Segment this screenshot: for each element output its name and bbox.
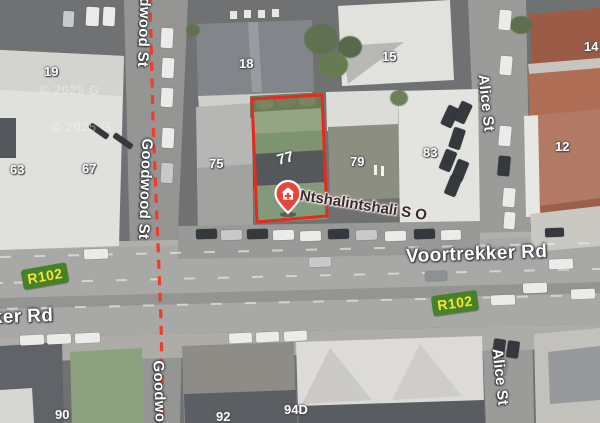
parcel-number: 19 bbox=[44, 64, 58, 79]
parcel-number: 75 bbox=[209, 156, 223, 171]
map-overlays bbox=[0, 0, 600, 423]
parcel-number: 90 bbox=[55, 407, 69, 422]
parcel-number: 94D bbox=[284, 402, 308, 417]
satellite-map-canvas[interactable]: © 2025 G © 2025 G R102 R102 Goodwood St … bbox=[0, 0, 600, 423]
parcel-number: 18 bbox=[239, 56, 253, 71]
parcel-number: 15 bbox=[382, 49, 396, 64]
parcel-number: 83 bbox=[423, 145, 437, 160]
parcel-number: 12 bbox=[555, 139, 569, 154]
parcel-number: 14 bbox=[584, 39, 598, 54]
parcel-number: 79 bbox=[350, 154, 364, 169]
place-marker-pin[interactable] bbox=[276, 181, 301, 217]
parcel-number: 67 bbox=[82, 161, 96, 176]
parcel-number: 63 bbox=[10, 162, 24, 177]
parcel-number: 92 bbox=[216, 409, 230, 423]
street-label-goodwood-mid: Goodwood St bbox=[135, 138, 156, 239]
